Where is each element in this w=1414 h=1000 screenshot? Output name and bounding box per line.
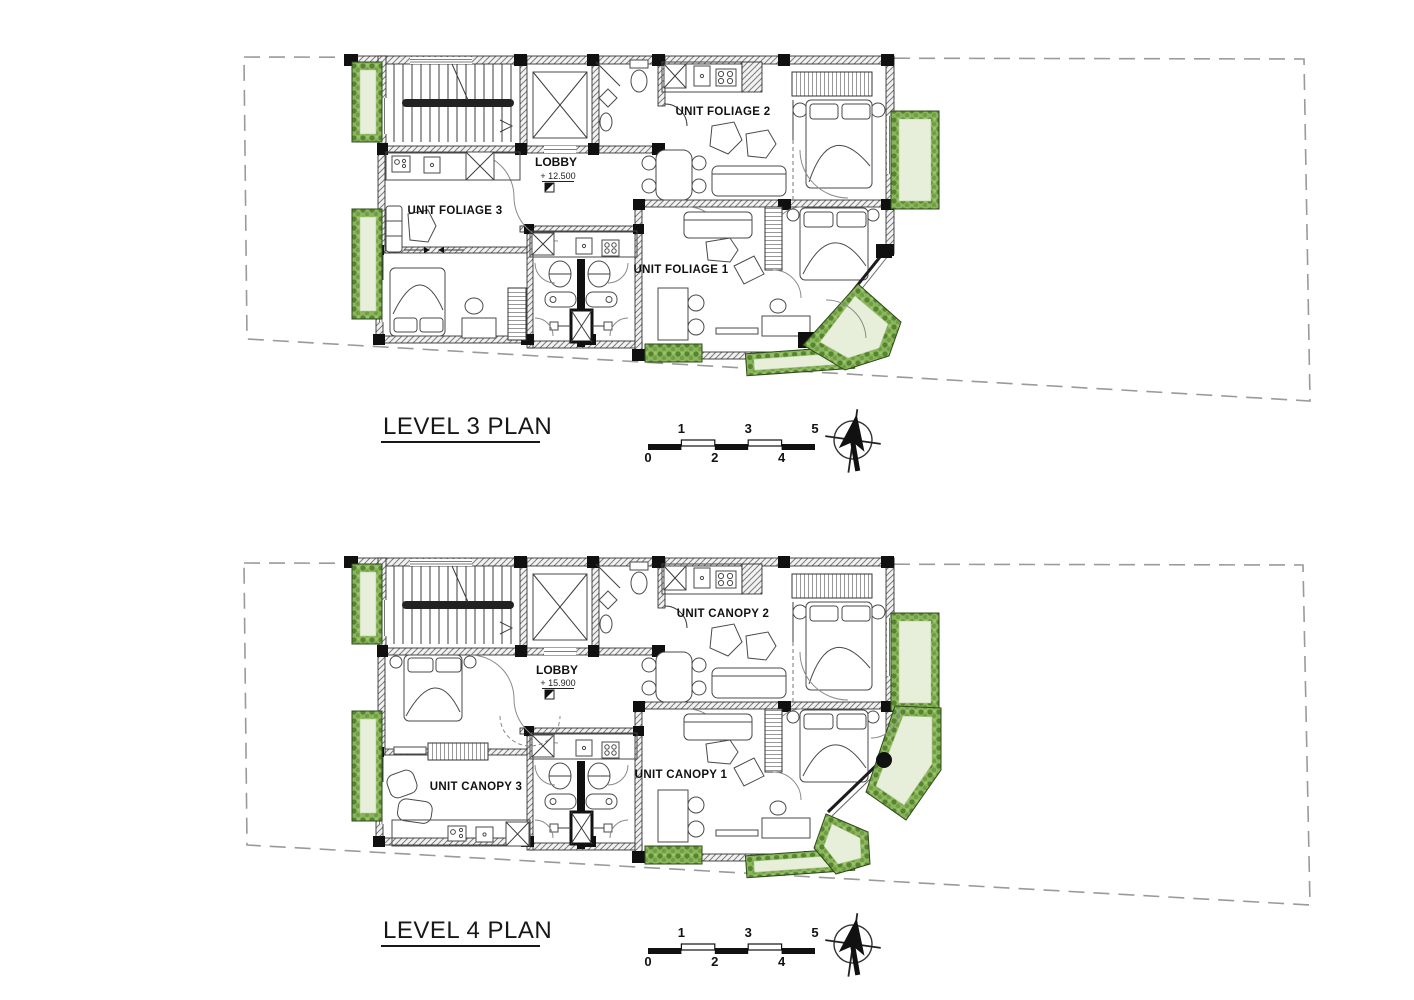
lobby-elevation: + 12.500 [540, 171, 575, 181]
unit-label: UNIT CANOPY 3 [430, 781, 523, 793]
unit-label: UNIT FOLIAGE 1 [634, 264, 729, 276]
lobby-elevation: + 15.900 [540, 678, 575, 688]
reference-dot [876, 752, 892, 768]
level3-plan: UNIT FOLIAGE 2 UNIT FOLIAGE 3 UNIT FOLIA… [244, 54, 1310, 477]
lobby-label: LOBBY [535, 155, 577, 169]
north-arrow-icon [821, 909, 885, 980]
floor-plan-sheet: 1 3 5 0 2 4 [0, 0, 1414, 1000]
scale-bar-level4 [644, 925, 818, 969]
lobby-label: LOBBY [536, 663, 578, 677]
level-marker-icon [545, 690, 554, 699]
floor-plans-drawing: 1 3 5 0 2 4 [0, 0, 1414, 1000]
plan-title-level4: LEVEL 4 PLAN [383, 917, 552, 944]
unit-label: UNIT FOLIAGE 2 [676, 106, 771, 118]
unit-label: UNIT CANOPY 1 [635, 769, 728, 781]
unit-label: UNIT FOLIAGE 3 [408, 205, 503, 217]
north-arrow-icon [821, 405, 885, 476]
level-marker-icon [545, 183, 554, 192]
unit-label: UNIT CANOPY 2 [677, 608, 770, 620]
scale-bar-level3 [644, 421, 818, 465]
plan-title-level3: LEVEL 3 PLAN [383, 413, 552, 440]
level4-plan: UNIT CANOPY 2 UNIT CANOPY 3 UNIT CANOPY … [244, 556, 1310, 981]
